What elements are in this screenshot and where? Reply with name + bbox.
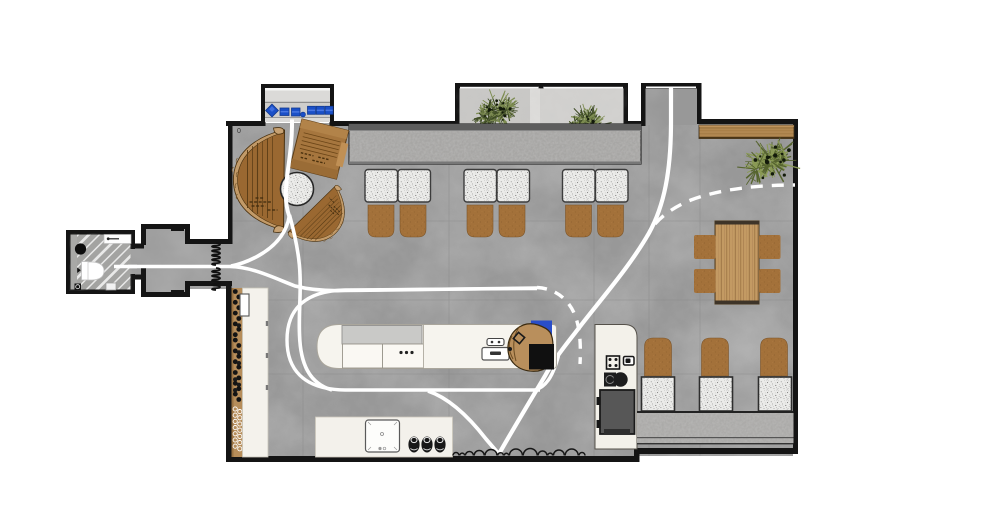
svg-text:0: 0 [237,128,241,135]
